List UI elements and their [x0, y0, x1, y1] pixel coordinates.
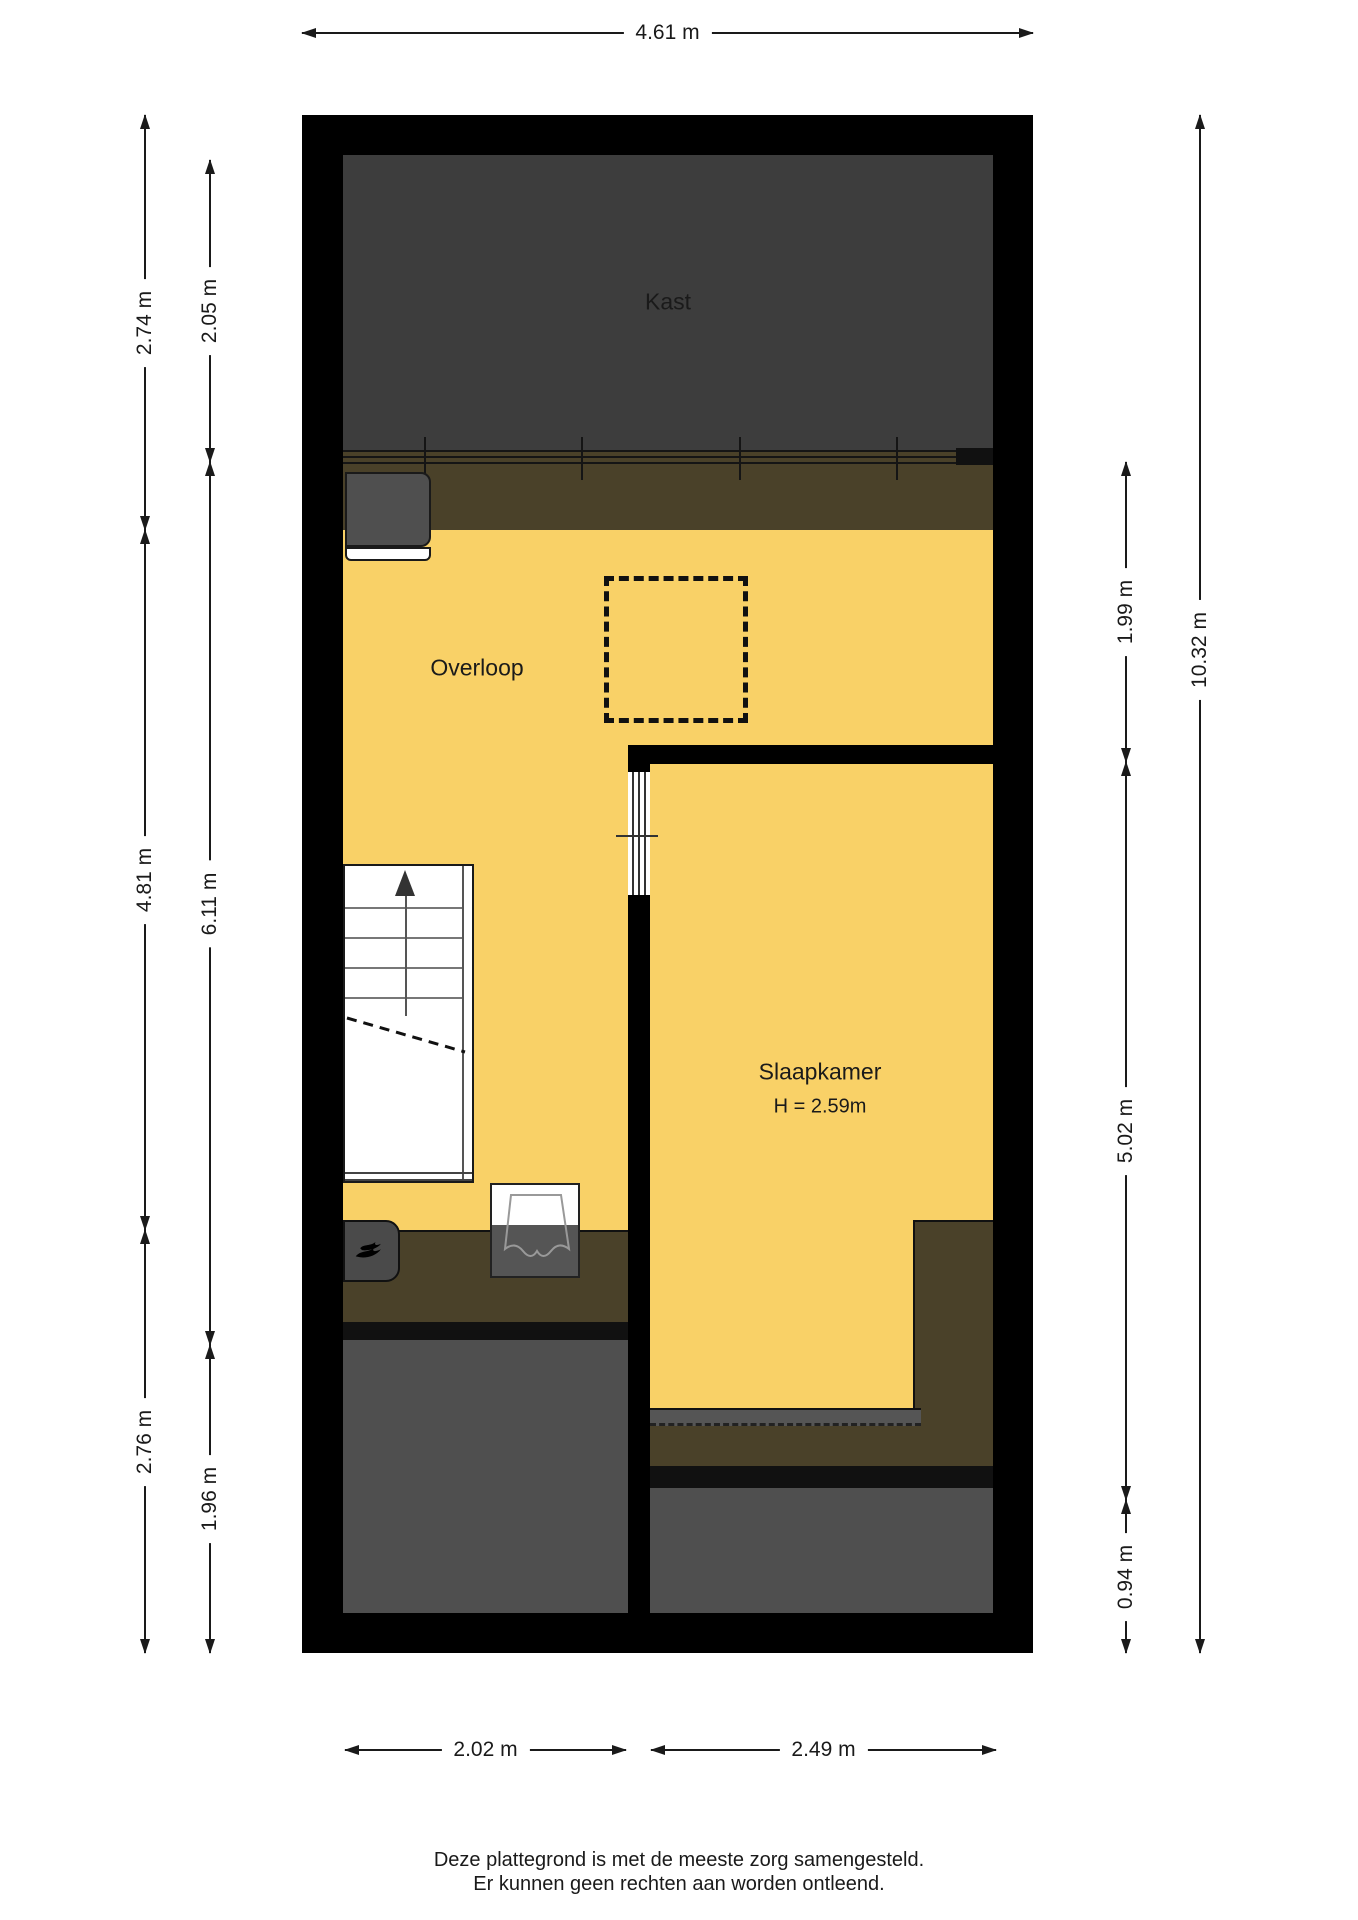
stair-cut-line	[345, 1014, 467, 1056]
staircase	[343, 864, 474, 1183]
dim-label: 2.05 m	[196, 267, 224, 355]
dim-label: 1.99 m	[1112, 568, 1140, 656]
dim-label: 1.96 m	[196, 1455, 224, 1543]
room-label-kast: Kast	[645, 289, 691, 316]
dim-label: 0.94 m	[1112, 1532, 1140, 1620]
dim-label: 10.32 m	[1186, 600, 1214, 700]
wall-band-right	[650, 1466, 993, 1488]
basin-icon	[495, 1193, 579, 1273]
sink-unit	[490, 1183, 580, 1278]
dim-label: 6.11 m	[196, 860, 224, 947]
rail-end-block	[956, 448, 993, 465]
rail-tick	[581, 437, 583, 480]
room-label-slaapkamer: Slaapkamer	[759, 1059, 882, 1086]
wall-slaapkamer-top	[628, 745, 993, 764]
wall-band-left	[343, 1322, 628, 1340]
cabinet	[345, 472, 431, 547]
dim-label: 2.74 m	[131, 278, 159, 366]
closet-rail	[343, 450, 960, 452]
dim-label: 2.76 m	[131, 1397, 159, 1485]
roof-edge-strip	[650, 1408, 921, 1426]
dim-top-label: 4.61 m	[623, 19, 711, 47]
door-slaapkamer	[628, 772, 650, 895]
floorplan-page: Kast Overloop Slaapkamer H = 2.59m 4.61 …	[0, 0, 1358, 1920]
rail-tick	[739, 437, 741, 480]
attic-room-left	[343, 1340, 628, 1613]
dim-label: 4.81 m	[131, 836, 159, 924]
cabinet-shelf	[345, 547, 431, 561]
room-label-overloop: Overloop	[430, 655, 523, 682]
rail-tick	[896, 437, 898, 480]
door-tick	[616, 835, 658, 837]
closet-rail	[343, 456, 960, 458]
disclaimer-line-2: Er kunnen geen rechten aan worden ontlee…	[0, 1873, 1358, 1896]
dim-bottom-right-label: 2.49 m	[779, 1736, 867, 1764]
skylight-dashed-outline	[604, 576, 748, 723]
knee-wall-bottom-right	[650, 1426, 993, 1466]
wall-vertical-upper	[628, 745, 650, 772]
dim-label: 5.02 m	[1112, 1087, 1140, 1175]
wall-vertical-lower	[628, 895, 650, 1613]
dim-bottom-left-label: 2.02 m	[441, 1736, 529, 1764]
up-arrow-icon	[395, 870, 415, 896]
boiler	[343, 1220, 400, 1282]
closet-rail	[343, 462, 960, 464]
flame-icon	[353, 1236, 389, 1266]
room-label-slaapkamer-height: H = 2.59m	[774, 1096, 867, 1119]
disclaimer-line-1: Deze plattegrond is met de meeste zorg s…	[0, 1849, 1358, 1872]
attic-room-right	[650, 1488, 993, 1613]
